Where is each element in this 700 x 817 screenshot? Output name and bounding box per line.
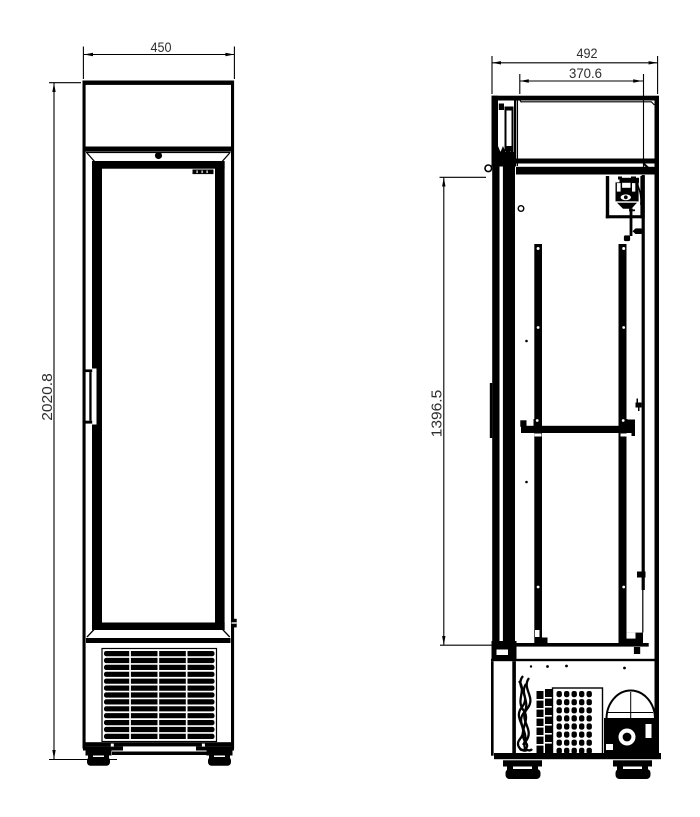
svg-text:370.6: 370.6 — [569, 65, 602, 81]
svg-text:492: 492 — [577, 45, 598, 61]
svg-text:1396.5: 1396.5 — [428, 390, 445, 438]
svg-text:450: 450 — [151, 39, 172, 55]
